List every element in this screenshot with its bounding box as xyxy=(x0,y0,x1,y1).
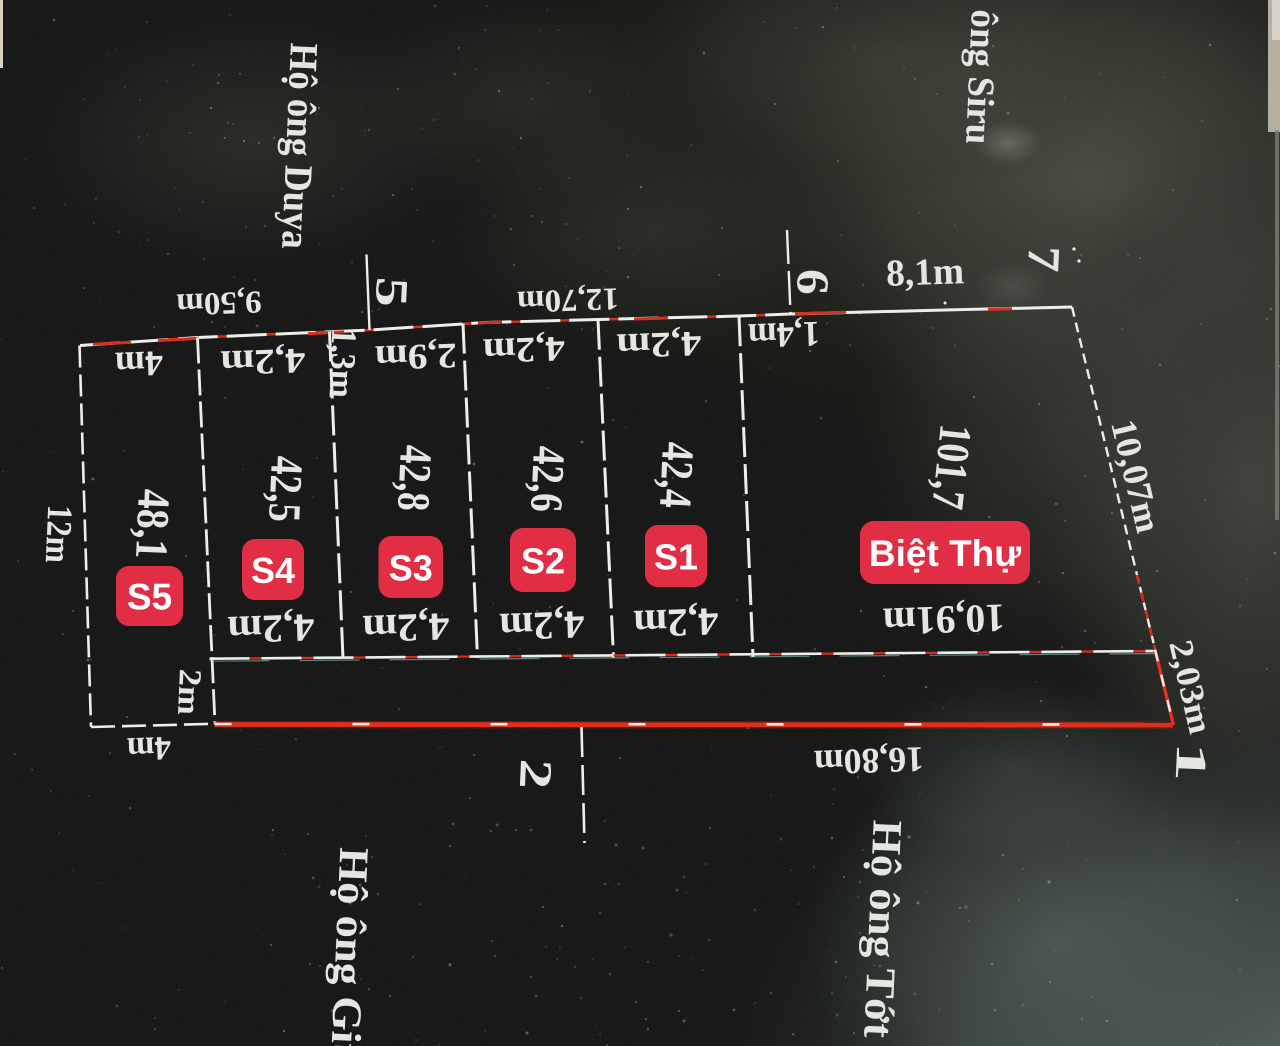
svg-text:2m: 2m xyxy=(171,668,209,716)
svg-text:1,3m: 1,3m xyxy=(321,327,364,399)
svg-text:4,2m: 4,2m xyxy=(227,605,316,653)
svg-text:ông Siru: ông Siru xyxy=(957,9,1005,146)
svg-text:42,6: 42,6 xyxy=(521,445,575,513)
svg-text:42,8: 42,8 xyxy=(388,444,442,512)
svg-text:6: 6 xyxy=(787,268,839,296)
svg-text:4m: 4m xyxy=(114,343,163,385)
svg-text:Hộ ông Duya: Hộ ông Duya xyxy=(273,42,327,250)
svg-text:Biệt Thự: Biệt Thự xyxy=(869,533,1021,574)
svg-text:4,2m: 4,2m xyxy=(499,602,586,650)
svg-text:7: 7 xyxy=(1018,245,1070,273)
svg-text:4,2m: 4,2m xyxy=(616,324,702,367)
svg-text:4m: 4m xyxy=(126,729,171,768)
svg-text:1: 1 xyxy=(1166,741,1217,783)
svg-text:5: 5 xyxy=(366,276,418,308)
svg-text:48,1: 48,1 xyxy=(126,488,180,560)
svg-text:2,9m: 2,9m xyxy=(374,336,457,379)
svg-text:101,7: 101,7 xyxy=(922,422,982,512)
svg-text:4,2m: 4,2m xyxy=(362,604,451,652)
svg-text:4,2m: 4,2m xyxy=(482,329,565,372)
svg-text:9,50m: 9,50m xyxy=(176,285,263,324)
svg-text:Hộ ông Tớt: Hộ ông Tớt xyxy=(854,819,909,1039)
svg-text:4,2m: 4,2m xyxy=(633,599,720,647)
svg-text:42,4: 42,4 xyxy=(650,441,704,509)
svg-text:S1: S1 xyxy=(654,537,698,578)
svg-text:S5: S5 xyxy=(127,577,172,618)
svg-text:S3: S3 xyxy=(389,548,433,589)
svg-text:1,4m: 1,4m xyxy=(747,314,820,356)
svg-text:10,91m: 10,91m xyxy=(882,595,1005,644)
svg-text:4,2m: 4,2m xyxy=(220,341,306,384)
svg-text:12m: 12m xyxy=(38,504,80,564)
svg-text:S4: S4 xyxy=(251,550,295,591)
svg-text:8,1m: 8,1m xyxy=(885,250,964,295)
svg-text:42,5: 42,5 xyxy=(259,455,313,523)
svg-text:12,70m: 12,70m xyxy=(516,281,620,321)
svg-text:2: 2 xyxy=(510,758,562,790)
svg-text:S2: S2 xyxy=(521,541,565,582)
svg-text:16,80m: 16,80m xyxy=(813,739,924,783)
